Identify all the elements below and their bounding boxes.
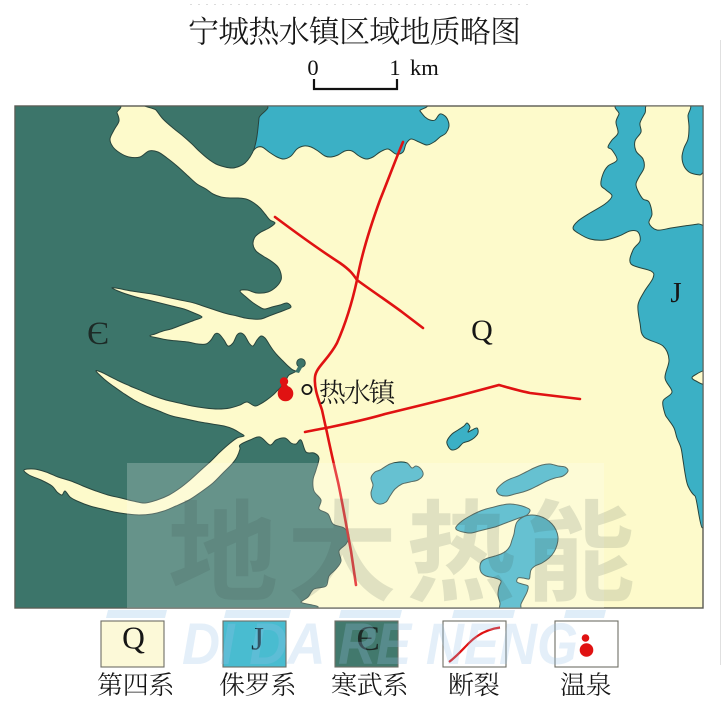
svg-text:Є: Є xyxy=(87,316,109,352)
svg-text:DI DA RE NENG: DI DA RE NENG xyxy=(182,612,578,677)
svg-text:J: J xyxy=(670,277,681,309)
svg-text:Q: Q xyxy=(122,621,145,656)
svg-text:0: 0 xyxy=(307,55,318,80)
svg-text:1: 1 xyxy=(389,55,400,80)
svg-text:km: km xyxy=(410,55,439,80)
svg-text:Q: Q xyxy=(471,314,493,347)
